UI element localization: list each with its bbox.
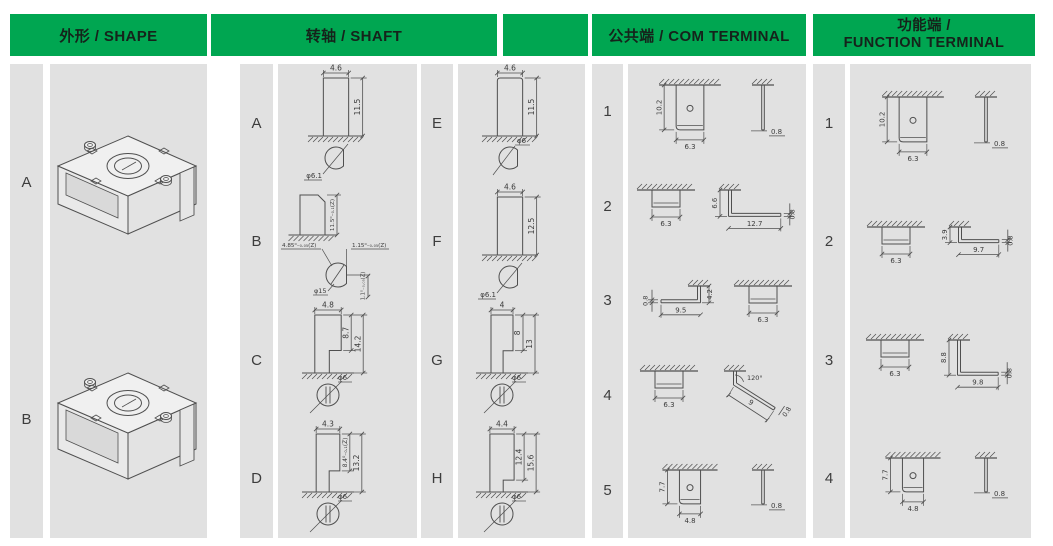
row-label-E: E — [421, 64, 453, 183]
com-terminal-3-front-view: 6.3 — [726, 270, 800, 332]
row-label-4: 4 — [813, 420, 845, 539]
svg-text:6.3: 6.3 — [890, 257, 901, 265]
function-terminal-3-front-view: 6.3 — [858, 324, 932, 386]
shaft-C-drawing: 4.88.714.2φ6 — [292, 301, 404, 419]
shape-label-strip: AB — [10, 64, 43, 538]
svg-text:4: 4 — [499, 301, 504, 310]
svg-text:12.4: 12.4 — [514, 448, 523, 465]
svg-text:13.2: 13.2 — [352, 454, 361, 471]
drawing-cell-2: 6.33.99.70.8 — [850, 183, 1031, 302]
function-terminal-2-front-view: 6.3 — [859, 211, 933, 273]
svg-text:φ15: φ15 — [314, 287, 327, 295]
svg-text:6.3: 6.3 — [661, 220, 672, 228]
drawing-cell-H: 4.412.415.6φ6 — [458, 420, 585, 539]
shaft-F-drawing: 4.612.5φ6.1 — [466, 183, 578, 301]
svg-text:φ6: φ6 — [338, 374, 348, 382]
drawing-cell-1: 10.26.30.8 — [850, 64, 1031, 183]
svg-text:0.8: 0.8 — [641, 296, 649, 306]
shaft-A-drawing: 4.611.5φ6.1 — [292, 64, 404, 182]
svg-text:4.85⁰₋₀.₀₅(Z): 4.85⁰₋₀.₀₅(Z) — [282, 242, 316, 249]
svg-text:8.4⁰₋₀.₁(Z): 8.4⁰₋₀.₁(Z) — [342, 437, 349, 467]
row-label-5: 5 — [592, 443, 623, 538]
function-drawing-panel: 10.26.30.86.33.99.70.86.38.89.80.87.74.8… — [850, 64, 1031, 538]
row-label-C: C — [240, 301, 273, 420]
svg-text:6.3: 6.3 — [684, 143, 695, 151]
row-label-F: F — [421, 183, 453, 302]
svg-text:4.8: 4.8 — [684, 517, 695, 525]
com-terminal-4-front-view: 6.3 — [632, 355, 706, 417]
svg-text:8.8: 8.8 — [940, 352, 948, 363]
svg-text:φ6.1: φ6.1 — [306, 172, 322, 180]
row-label-A: A — [240, 64, 273, 183]
shaft-right-label-strip: EFGH — [421, 64, 453, 538]
row-label-3: 3 — [592, 254, 623, 349]
svg-text:4.4: 4.4 — [496, 420, 508, 429]
function-terminal-4-front-view: 7.74.8 — [865, 442, 961, 516]
svg-text:8.7: 8.7 — [341, 327, 350, 339]
row-label-B: B — [240, 183, 273, 302]
com-drawing-panel: 10.26.30.86.36.612.70.84.29.50.86.36.312… — [628, 64, 806, 538]
drawing-cell-A: 4.611.5φ6.1 — [278, 64, 417, 183]
shaft-B-drawing: 11.5⁰₋₀.₁(Z)4.85⁰₋₀.₀₅(Z)1.15⁰₋₀.₀₅(Z)1.… — [280, 183, 416, 301]
com-terminal-5-side-view: 0.8 — [741, 454, 793, 516]
svg-text:φ6.1: φ6.1 — [480, 291, 496, 299]
header-shaft: 转轴 / SHAFT — [211, 14, 497, 56]
header-function-terminal: 功能端 / FUNCTION TERMINAL — [813, 14, 1035, 56]
shape-drawing-panel — [50, 64, 207, 538]
com-terminal-4-side-view: 120°90.8 — [709, 355, 803, 437]
drawing-cell-A — [50, 64, 207, 301]
svg-text:0.8: 0.8 — [994, 140, 1005, 148]
shaft-E-drawing: 4.611.5φ6 — [466, 64, 578, 182]
svg-text:0.8: 0.8 — [788, 209, 796, 219]
drawing-cell-D: 4.38.4⁰₋₀.₁(Z)13.2φ6 — [278, 420, 417, 539]
drawing-cell-1: 10.26.30.8 — [628, 64, 806, 159]
row-label-G: G — [421, 301, 453, 420]
svg-text:6.3: 6.3 — [757, 316, 768, 324]
row-label-1: 1 — [813, 64, 845, 183]
function-terminal-4-side-view: 0.8 — [964, 442, 1016, 504]
com-label-strip: 12345 — [592, 64, 623, 538]
function-label-strip: 1234 — [813, 64, 845, 538]
header-shaft-extension — [503, 14, 588, 56]
header-com-terminal: 公共端 / COM TERMINAL — [592, 14, 806, 56]
svg-text:6.3: 6.3 — [890, 370, 901, 378]
drawing-cell-B — [50, 301, 207, 538]
drawing-cell-3: 4.29.50.86.3 — [628, 254, 806, 349]
svg-text:1.1⁰₋₀.₀₅(Z): 1.1⁰₋₀.₀₅(Z) — [360, 271, 366, 300]
svg-text:φ6: φ6 — [512, 374, 522, 382]
svg-text:6.3: 6.3 — [907, 155, 918, 163]
svg-text:4.6: 4.6 — [504, 64, 516, 73]
function-terminal-1-front-view: 10.26.3 — [865, 81, 961, 166]
header-function-terminal-zh: 功能端 / — [897, 18, 951, 35]
svg-text:15.6: 15.6 — [526, 454, 535, 471]
drawing-cell-4: 6.3120°90.8 — [628, 348, 806, 443]
row-label-1: 1 — [592, 64, 623, 159]
function-terminal-3-side-view: 8.89.80.8 — [935, 324, 1022, 397]
com-terminal-1-side-view: 0.8 — [741, 69, 793, 142]
row-label-3: 3 — [813, 301, 845, 420]
row-label-B: B — [10, 301, 43, 538]
row-label-2: 2 — [592, 159, 623, 254]
switch-datasheet-table: 外形 / SHAPE 转轴 / SHAFT 公共端 / COM TERMINAL… — [0, 0, 1053, 546]
function-terminal-2-side-view: 3.99.70.8 — [936, 211, 1023, 265]
svg-text:9.8: 9.8 — [973, 378, 984, 386]
svg-text:13: 13 — [525, 339, 534, 349]
drawing-cell-C: 4.88.714.2φ6 — [278, 301, 417, 420]
drawing-cell-3: 6.38.89.80.8 — [850, 301, 1031, 420]
drawing-cell-G: 4813φ6 — [458, 301, 585, 420]
shaft-left-drawing-panel: 4.611.5φ6.111.5⁰₋₀.₁(Z)4.85⁰₋₀.₀₅(Z)1.15… — [278, 64, 417, 538]
svg-text:10.2: 10.2 — [655, 100, 663, 116]
housing-A-isometric-drawing — [50, 110, 207, 255]
svg-text:φ6: φ6 — [338, 493, 348, 501]
svg-text:3.9: 3.9 — [940, 229, 948, 240]
row-label-4: 4 — [592, 348, 623, 443]
shaft-right-drawing-panel: 4.611.5φ64.612.5φ6.14813φ64.412.415.6φ6 — [458, 64, 585, 538]
function-terminal-1-side-view: 0.8 — [964, 81, 1016, 154]
row-label-2: 2 — [813, 183, 845, 302]
svg-text:10.2: 10.2 — [878, 111, 886, 127]
svg-text:0.8: 0.8 — [994, 490, 1005, 498]
svg-text:9.5: 9.5 — [675, 306, 686, 314]
svg-text:4.2: 4.2 — [706, 289, 714, 300]
svg-text:4.3: 4.3 — [322, 420, 334, 429]
svg-text:11.5: 11.5 — [526, 99, 535, 116]
shaft-left-label-strip: ABCD — [240, 64, 273, 538]
com-terminal-2-front-view: 6.3 — [629, 174, 703, 236]
drawing-cell-E: 4.611.5φ6 — [458, 64, 585, 183]
svg-text:6.3: 6.3 — [663, 401, 674, 409]
svg-text:φ6: φ6 — [512, 493, 522, 501]
svg-text:120°: 120° — [747, 374, 763, 382]
drawing-cell-4: 7.74.80.8 — [850, 420, 1031, 539]
row-label-A: A — [10, 64, 43, 301]
svg-text:0.8: 0.8 — [1006, 368, 1014, 378]
svg-text:11.5: 11.5 — [352, 99, 361, 116]
svg-text:7.7: 7.7 — [882, 469, 890, 480]
header-function-terminal-en: FUNCTION TERMINAL — [844, 35, 1005, 52]
svg-text:0.8: 0.8 — [770, 128, 781, 136]
svg-text:0.8: 0.8 — [1006, 235, 1014, 245]
svg-text:14.2: 14.2 — [353, 336, 362, 353]
svg-text:0.8: 0.8 — [770, 502, 781, 510]
drawing-cell-5: 7.74.80.8 — [628, 443, 806, 538]
com-terminal-5-front-view: 7.74.8 — [642, 454, 738, 528]
row-label-H: H — [421, 420, 453, 539]
svg-text:11.5⁰₋₀.₁(Z): 11.5⁰₋₀.₁(Z) — [329, 199, 336, 231]
svg-text:9: 9 — [746, 398, 754, 407]
shaft-D-drawing: 4.38.4⁰₋₀.₁(Z)13.2φ6 — [292, 420, 404, 538]
svg-text:4.8: 4.8 — [322, 301, 334, 310]
row-label-D: D — [240, 420, 273, 539]
svg-text:4.6: 4.6 — [330, 64, 342, 73]
svg-text:7.7: 7.7 — [658, 481, 666, 492]
svg-text:4.8: 4.8 — [907, 505, 918, 513]
drawing-cell-B: 11.5⁰₋₀.₁(Z)4.85⁰₋₀.₀₅(Z)1.15⁰₋₀.₀₅(Z)1.… — [278, 183, 417, 302]
svg-text:1.15⁰₋₀.₀₅(Z): 1.15⁰₋₀.₀₅(Z) — [352, 242, 386, 249]
svg-text:12.5: 12.5 — [526, 217, 535, 234]
svg-text:φ6: φ6 — [517, 137, 527, 145]
com-terminal-1-front-view: 10.26.3 — [642, 69, 738, 154]
svg-text:6.6: 6.6 — [711, 198, 719, 209]
com-terminal-3-side-view: 4.29.50.8 — [635, 270, 723, 325]
drawing-cell-2: 6.36.612.70.8 — [628, 159, 806, 254]
com-terminal-2-side-view: 6.612.70.8 — [706, 174, 805, 238]
shaft-G-drawing: 4813φ6 — [466, 301, 578, 419]
header-shape: 外形 / SHAPE — [10, 14, 207, 56]
svg-text:12.7: 12.7 — [747, 220, 763, 228]
svg-text:8: 8 — [513, 330, 522, 335]
svg-text:0.8: 0.8 — [780, 405, 792, 418]
svg-text:4.6: 4.6 — [504, 183, 516, 192]
svg-text:9.7: 9.7 — [973, 246, 984, 254]
housing-B-isometric-drawing — [50, 347, 207, 492]
shaft-H-drawing: 4.412.415.6φ6 — [466, 420, 578, 538]
drawing-cell-F: 4.612.5φ6.1 — [458, 183, 585, 302]
